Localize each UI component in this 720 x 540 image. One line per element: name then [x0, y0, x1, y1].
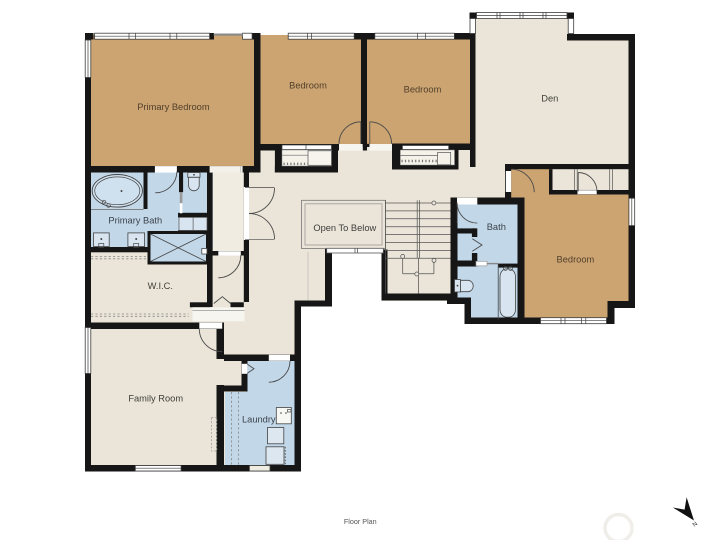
svg-text:Open To Below: Open To Below: [313, 223, 376, 233]
svg-text:Family Room: Family Room: [128, 394, 183, 404]
svg-text:Floor Plan: Floor Plan: [344, 517, 377, 526]
svg-text:Den: Den: [541, 94, 558, 104]
svg-text:Bath: Bath: [487, 222, 506, 232]
svg-text:W.I.C.: W.I.C.: [148, 281, 173, 291]
svg-text:Bedroom: Bedroom: [557, 255, 595, 265]
svg-text:Bedroom: Bedroom: [289, 81, 327, 91]
svg-text:Laundry: Laundry: [242, 415, 276, 425]
svg-text:Primary Bedroom: Primary Bedroom: [137, 102, 210, 112]
svg-text:Bedroom: Bedroom: [404, 85, 442, 95]
svg-text:Primary Bath: Primary Bath: [108, 216, 162, 226]
